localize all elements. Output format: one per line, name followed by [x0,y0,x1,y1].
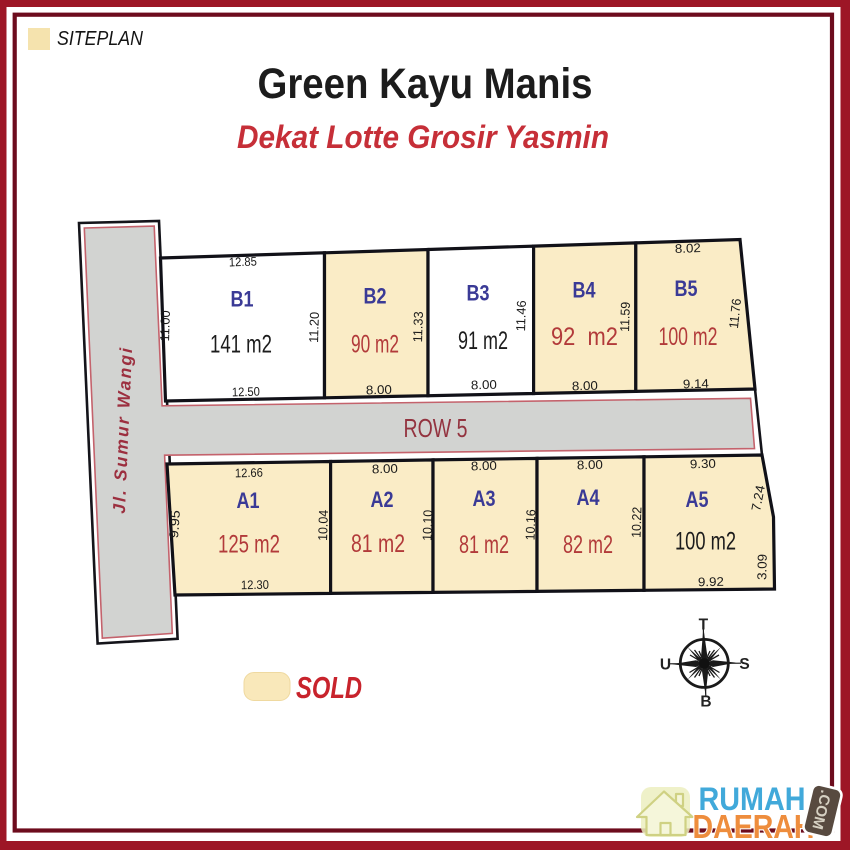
svg-text:12.50: 12.50 [232,385,260,400]
svg-text:8.02: 8.02 [675,241,702,256]
svg-text:91 m2: 91 m2 [458,327,508,355]
svg-text:90 m2: 90 m2 [351,331,399,359]
svg-text:81 m2: 81 m2 [351,530,405,558]
svg-text:9.95: 9.95 [166,510,183,539]
svg-text:10.10: 10.10 [419,510,435,542]
svg-text:82 m2: 82 m2 [563,531,613,559]
svg-text:81 m2: 81 m2 [459,531,509,559]
svg-text:11.33: 11.33 [410,311,426,343]
svg-text:A2: A2 [371,487,394,512]
svg-text:8.00: 8.00 [372,462,398,477]
svg-text:9.92: 9.92 [698,575,724,589]
svg-text:A3: A3 [473,486,496,511]
svg-text:12.66: 12.66 [235,466,263,481]
svg-text:8.00: 8.00 [577,458,603,473]
svg-text:B: B [700,694,711,711]
svg-text:100 m2: 100 m2 [675,528,736,556]
svg-text:B5: B5 [675,276,698,301]
svg-text:Dekat Lotte Grosir Yasmin: Dekat Lotte Grosir Yasmin [237,119,609,155]
svg-text:A4: A4 [577,485,601,510]
svg-text:11.46: 11.46 [513,300,529,332]
svg-text:T: T [699,617,709,634]
svg-text:ROW 5: ROW 5 [404,413,468,443]
svg-text:DAERAH: DAERAH [693,808,815,845]
svg-text:U: U [660,657,671,674]
svg-text:9.30: 9.30 [690,457,716,472]
svg-text:8.00: 8.00 [366,383,392,398]
svg-text:11.00: 11.00 [157,310,173,342]
svg-text:125 m2: 125 m2 [218,531,280,559]
svg-text:SITEPLAN: SITEPLAN [57,28,143,50]
svg-text:A5: A5 [686,487,709,512]
svg-text:9.14: 9.14 [683,377,709,392]
svg-text:10.22: 10.22 [628,507,644,539]
svg-text:B4: B4 [573,278,597,303]
svg-text:141 m2: 141 m2 [210,331,272,359]
svg-text:SOLD: SOLD [296,670,362,705]
svg-text:B1: B1 [231,287,254,312]
svg-text:B3: B3 [467,281,490,306]
svg-text:10.04: 10.04 [315,510,331,542]
svg-text:8.00: 8.00 [471,459,497,474]
svg-text:A1: A1 [237,488,260,513]
svg-text:12.30: 12.30 [241,578,269,592]
svg-text:8.00: 8.00 [471,378,497,393]
svg-text:Green Kayu Manis: Green Kayu Manis [258,60,593,108]
svg-text:B2: B2 [364,284,387,309]
svg-text:100 m2: 100 m2 [659,323,718,351]
svg-text:8.00: 8.00 [572,379,598,394]
svg-text:11.59: 11.59 [617,302,633,333]
svg-text:3.09: 3.09 [754,554,769,580]
svg-text:12.85: 12.85 [229,255,258,270]
svg-text:11.76: 11.76 [726,298,744,329]
svg-text:S: S [739,656,749,673]
svg-text:92 m2: 92 m2 [551,323,618,351]
svg-text:11.20: 11.20 [306,312,322,344]
svg-text:10.16: 10.16 [522,509,538,541]
